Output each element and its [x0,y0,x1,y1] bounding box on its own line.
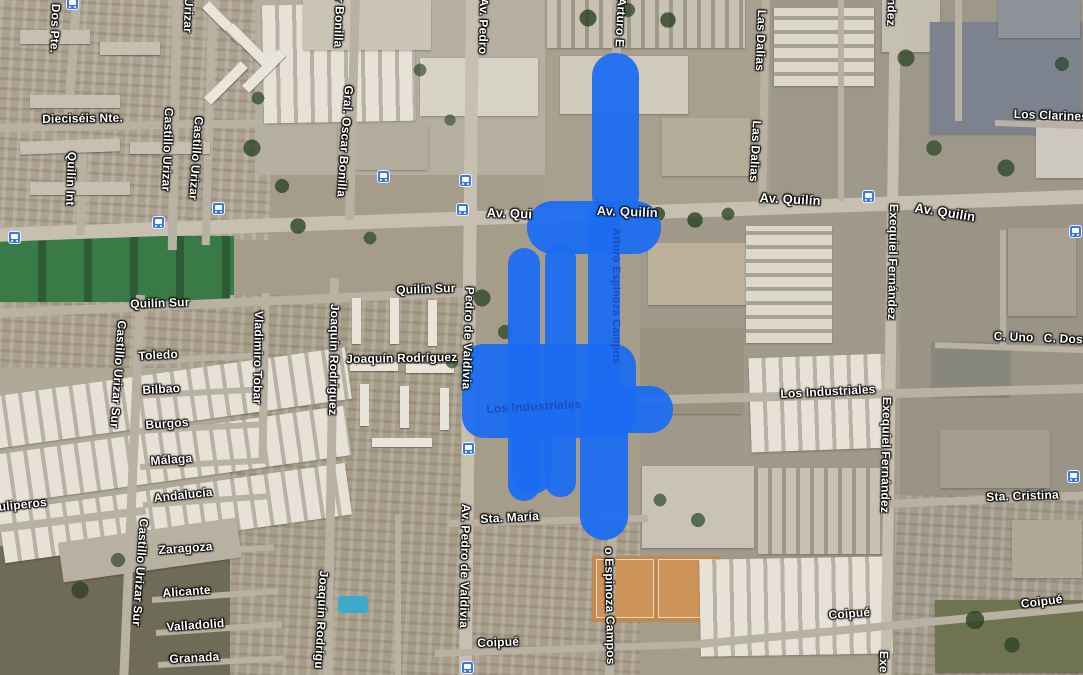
factory-roof [662,118,750,176]
street-label-vladimiro-tobar: Vladimiro Tobar [250,311,266,405]
street-label-los-clarines: Los Clarines [1014,107,1083,124]
street-label-r-bonilla: r Bonilla [331,0,347,48]
swimming-pool [338,596,368,613]
road-minor-east [1000,230,1006,345]
factory-roof [547,0,745,48]
apartment-block [390,298,399,344]
apartment-block [406,364,454,373]
street-label-bilbao: Bilbao [142,381,181,397]
selected-streets-highlight [580,390,628,540]
street-label-m-laga: Málaga [150,451,193,468]
street-label-quil-n-sur: Quilín Sur [396,281,456,297]
warehouse-roof [642,466,754,548]
street-label-exe: Exe [877,651,891,673]
street-label-castillo-urizar: Castillo Urizar [159,108,176,192]
apartment-block [100,42,160,55]
bus-stop-icon[interactable] [459,174,472,187]
bus-stop-icon[interactable] [152,216,165,229]
street-label-burgos: Burgos [145,415,189,432]
bus-stop-icon[interactable] [1069,225,1082,238]
selected-streets-highlight [592,53,639,218]
building-roof [1008,228,1076,316]
road-minor-south [395,515,401,675]
street-label-arturo-espinoza-campos: Arturo Espinoza Campos [610,228,622,364]
street-label-joaqu-n-rodr-guez: Joaquín Rodríguez [326,304,342,416]
street-label-dos-pte: Dos Pte. [47,4,63,54]
factory-roof [303,0,431,50]
street-label-ndez: ndez [884,0,899,26]
street-label-toledo: Toledo [138,347,178,363]
apartment-block [30,182,130,195]
building-roof [1012,520,1082,578]
bus-stop-icon[interactable] [212,202,225,215]
street-label-exequiel-fern-ndez: Exequiel Fernández [878,397,894,514]
street-label-quil-n-int: Quilín Int [63,152,79,206]
road-minor-north [838,0,844,201]
street-label-exequiel-fern-ndez: Exequiel Fernández [885,204,901,321]
street-label-av-pedro-de-valdivia: Av. Pedro de Valdivia [457,504,473,628]
apartment-block [352,298,361,344]
street-label-av-pedro: Av. Pedro [476,0,491,54]
street-label-sta-cristina: Sta. Cristina [986,487,1059,504]
building-roof [940,430,1050,488]
street-label-quil-n-sur: Quilín Sur [130,295,190,311]
street-label-coipu: Coipué [828,605,871,622]
street-label-o-espinoza-campos: o Espinoza Campos [602,547,618,665]
road-minor-northeast [955,0,962,121]
warehouse-roof [746,226,832,343]
street-label-granada: Granada [169,649,220,666]
bus-stop-icon[interactable] [456,203,469,216]
apartment-block [372,438,432,447]
building-roof [998,0,1080,38]
street-label-coipu: Coipué [477,635,519,650]
bus-stop-icon[interactable] [66,0,79,10]
factory-roof [774,8,874,86]
street-label-c-uno: C. Uno [994,329,1034,344]
bus-stop-icon[interactable] [377,170,390,183]
apartment-block [30,95,120,108]
warehouse-roof [758,468,884,554]
map-canvas[interactable]: Dos Pte.Dieciséis Nte.Quilín IntUrizarCa… [0,0,1083,675]
street-label-av-quil-n: Av. Quilín [596,203,658,220]
warehouse-roof [748,354,887,453]
apartment-block [360,384,369,426]
street-label-diecis-is-nte: Dieciséis Nte. [42,111,123,126]
apartment-block [428,300,437,346]
bus-stop-icon[interactable] [862,190,875,203]
bus-stop-icon[interactable] [461,661,474,674]
street-label-av-quil-n: Av. Quilín [759,190,821,208]
sports-fields [0,236,234,304]
apartment-block [400,386,409,428]
street-label-joaqu-n-rodr-guez: Joaquín Rodríguez [346,350,458,366]
street-label-urizar: Urizar [181,0,196,33]
bus-stop-icon[interactable] [462,442,475,455]
street-label-las-dalias: Las Dalias [753,10,769,72]
bus-stop-icon[interactable] [8,231,21,244]
street-label-c-dos: C. Dos [1044,331,1083,346]
street-label-arturo-e: Arturo E [612,0,629,48]
bus-stop-icon[interactable] [1067,470,1080,483]
factory-roof [420,58,538,116]
street-label-av-qui: Av. Qui [486,205,532,222]
apartment-block [440,388,449,430]
